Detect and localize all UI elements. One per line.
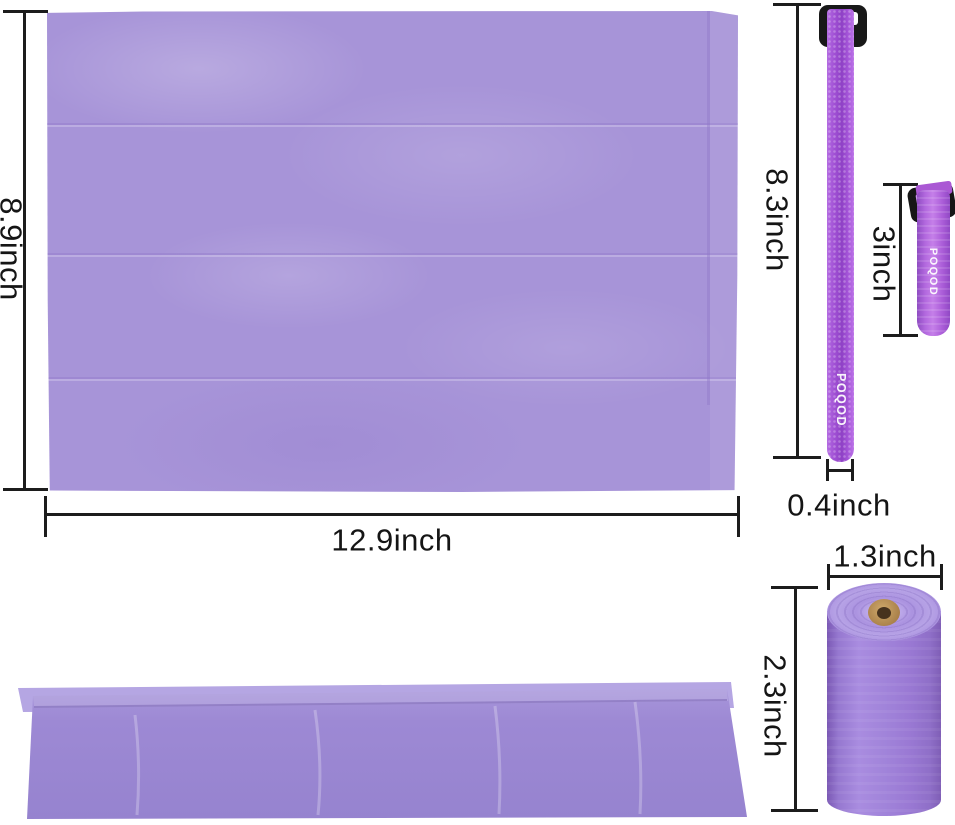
long-strap-length-top-tick bbox=[773, 3, 821, 6]
bag-fold-crease bbox=[47, 377, 738, 381]
flat-bag-height-top-tick bbox=[3, 10, 48, 13]
roll-width-left-tick bbox=[827, 564, 830, 590]
bag-fold-crease bbox=[47, 123, 738, 127]
roll-height-label: 2.3inch bbox=[760, 654, 791, 757]
flat-bag-width-dimension-line bbox=[44, 513, 740, 516]
roll-width-dimension-line bbox=[827, 575, 943, 578]
flat-bag-image bbox=[47, 11, 738, 492]
flat-bag-width-label: 12.9inch bbox=[331, 525, 452, 556]
product-dimensions-diagram: 8.9inch 12.9inch 8.3inch POQOD 0.4inch 3… bbox=[0, 0, 955, 825]
bag-fold-crease bbox=[47, 253, 738, 257]
rolled-strap-brand-text: POQOD bbox=[927, 248, 939, 296]
long-strap-length-dimension-line bbox=[796, 4, 799, 459]
flat-bag-width-right-tick bbox=[737, 496, 740, 537]
long-strap-width-dimension-line bbox=[827, 469, 853, 472]
roll-height-top-tick bbox=[771, 586, 818, 589]
rolled-strap-length-top-tick bbox=[883, 183, 918, 186]
bag-roll-core bbox=[868, 599, 900, 626]
long-strap-length-bottom-tick bbox=[773, 456, 821, 459]
long-strap-width-right-tick bbox=[851, 459, 854, 481]
folded-bag-image bbox=[15, 680, 755, 825]
flat-bag-width-left-tick bbox=[44, 496, 47, 537]
bag-roll-top bbox=[827, 583, 941, 641]
bag-side-panel bbox=[710, 11, 738, 492]
bag-vertical-crease bbox=[707, 11, 710, 405]
long-strap-width-left-tick bbox=[826, 459, 829, 481]
rolled-strap-length-label: 3inch bbox=[869, 226, 900, 303]
roll-height-dimension-line bbox=[794, 586, 797, 812]
flat-bag-height-label: 8.9inch bbox=[0, 197, 27, 300]
roll-width-right-tick bbox=[940, 564, 943, 590]
roll-width-label: 1.3inch bbox=[833, 541, 936, 572]
roll-height-bottom-tick bbox=[771, 809, 818, 812]
long-strap-brand-text: POQOD bbox=[834, 373, 848, 427]
long-strap-width-label: 0.4inch bbox=[787, 490, 890, 521]
flat-bag-height-bottom-tick bbox=[3, 488, 48, 491]
rolled-strap-length-bottom-tick bbox=[883, 334, 918, 337]
bag-roll-core-hole bbox=[877, 607, 891, 619]
long-strap-length-label: 8.3inch bbox=[762, 168, 793, 271]
bag-roll-image bbox=[827, 611, 941, 816]
